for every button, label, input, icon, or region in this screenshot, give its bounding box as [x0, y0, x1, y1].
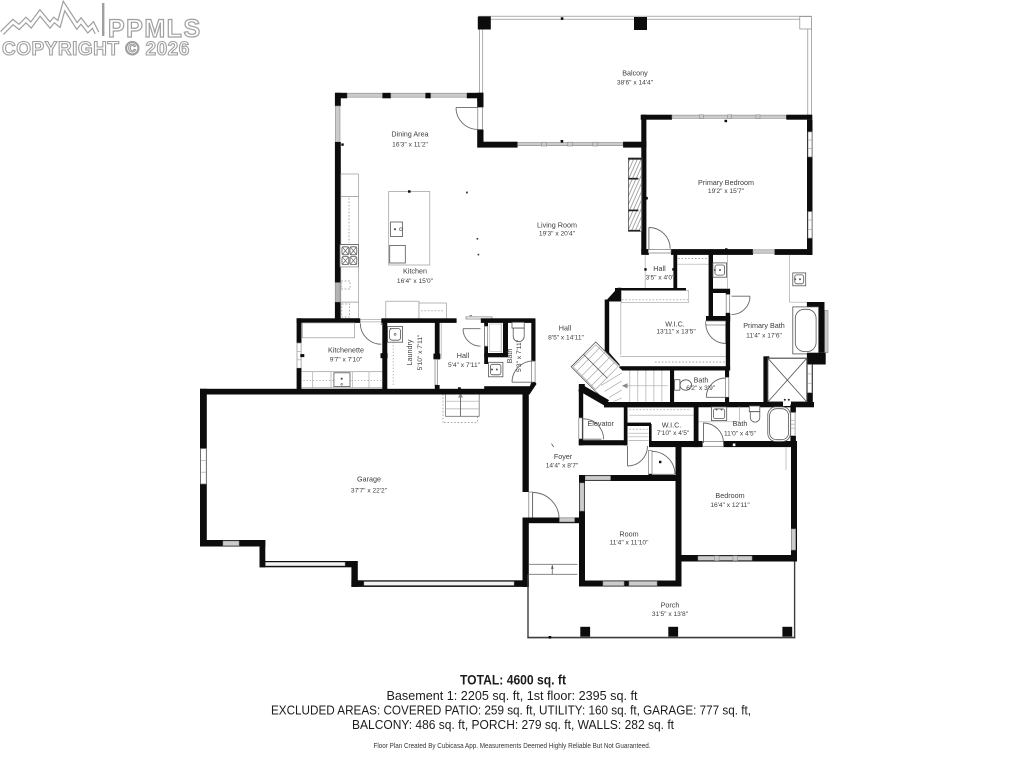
svg-text:Elevator: Elevator: [588, 419, 615, 428]
svg-text:Bedroom: Bedroom: [715, 491, 744, 500]
svg-text:9'7" x 7'10": 9'7" x 7'10": [330, 357, 363, 364]
svg-text:16'4" x 12'11": 16'4" x 12'11": [710, 502, 750, 509]
svg-text:13'11" x 13'5": 13'11" x 13'5": [656, 329, 696, 336]
svg-text:Dining Area: Dining Area: [391, 130, 428, 139]
svg-text:19'2" x 15'7": 19'2" x 15'7": [708, 188, 745, 195]
svg-text:6'2" x 3'9": 6'2" x 3'9": [686, 385, 715, 392]
svg-text:EXCLUDED AREAS: COVERED PATIO:: EXCLUDED AREAS: COVERED PATIO: 259 sq. f…: [271, 703, 751, 718]
svg-text:7'10" x 4'5": 7'10" x 4'5": [657, 430, 690, 437]
svg-text:W.I.C.: W.I.C.: [665, 320, 685, 329]
svg-text:Bath: Bath: [694, 376, 709, 385]
svg-text:5'4" x 7'11": 5'4" x 7'11": [448, 362, 481, 369]
svg-text:37'7" x 22'2": 37'7" x 22'2": [351, 488, 388, 495]
svg-text:19'3" x 20'4": 19'3" x 20'4": [539, 231, 576, 238]
svg-text:Room: Room: [619, 530, 638, 539]
svg-text:Primary Bedroom: Primary Bedroom: [698, 178, 754, 187]
svg-text:Garage: Garage: [357, 475, 381, 484]
svg-text:11'4" x 17'6": 11'4" x 17'6": [746, 333, 782, 340]
svg-text:Foyer: Foyer: [554, 452, 573, 461]
svg-text:16'3" x 11'2": 16'3" x 11'2": [392, 142, 428, 149]
svg-text:TOTAL: 4600 sq. ft: TOTAL: 4600 sq. ft: [460, 672, 566, 688]
svg-text:38'6" x 14'4": 38'6" x 14'4": [617, 80, 654, 87]
svg-text:BALCONY: 486 sq. ft, PORCH: 27: BALCONY: 486 sq. ft, PORCH: 279 sq. ft, …: [352, 717, 674, 732]
svg-text:8'5" x 14'11": 8'5" x 14'11": [548, 335, 584, 342]
svg-text:Hall: Hall: [457, 351, 470, 360]
svg-text:Kitchen: Kitchen: [403, 267, 427, 276]
svg-text:Laundry: Laundry: [405, 339, 414, 365]
svg-text:14'4" x 8'7": 14'4" x 8'7": [546, 463, 579, 470]
svg-text:Balcony: Balcony: [622, 69, 648, 78]
svg-text:Porch: Porch: [661, 601, 680, 610]
svg-text:11'0" x 4'5": 11'0" x 4'5": [724, 431, 757, 438]
svg-text:W.I.C.: W.I.C.: [662, 421, 682, 430]
svg-text:3'5" x 4'0": 3'5" x 4'0": [646, 275, 675, 282]
svg-text:Primary Bath: Primary Bath: [743, 321, 785, 330]
svg-text:Bath: Bath: [733, 419, 748, 428]
svg-text:31'5" x 13'8": 31'5" x 13'8": [652, 611, 689, 618]
svg-text:11'4" x 11'10": 11'4" x 11'10": [610, 540, 650, 547]
svg-text:5'10" x 7'11": 5'10" x 7'11": [417, 334, 424, 370]
svg-text:16'4" x 15'0": 16'4" x 15'0": [397, 278, 434, 285]
svg-text:COPYRIGHT © 2026: COPYRIGHT © 2026: [2, 39, 190, 60]
svg-text:Hall: Hall: [559, 324, 572, 333]
svg-text:Basement 1: 2205 sq. ft, 1st f: Basement 1: 2205 sq. ft, 1st floor: 2395…: [387, 688, 638, 703]
svg-text:5'3" x 7'11": 5'3" x 7'11": [516, 339, 523, 372]
svg-text:Hall: Hall: [653, 264, 666, 273]
svg-text:Living Room: Living Room: [537, 221, 577, 230]
svg-text:Bath: Bath: [505, 349, 514, 364]
svg-text:Floor Plan Created By Cubicasa: Floor Plan Created By Cubicasa App. Meas…: [374, 743, 651, 750]
svg-text:Kitchenette: Kitchenette: [328, 346, 364, 355]
